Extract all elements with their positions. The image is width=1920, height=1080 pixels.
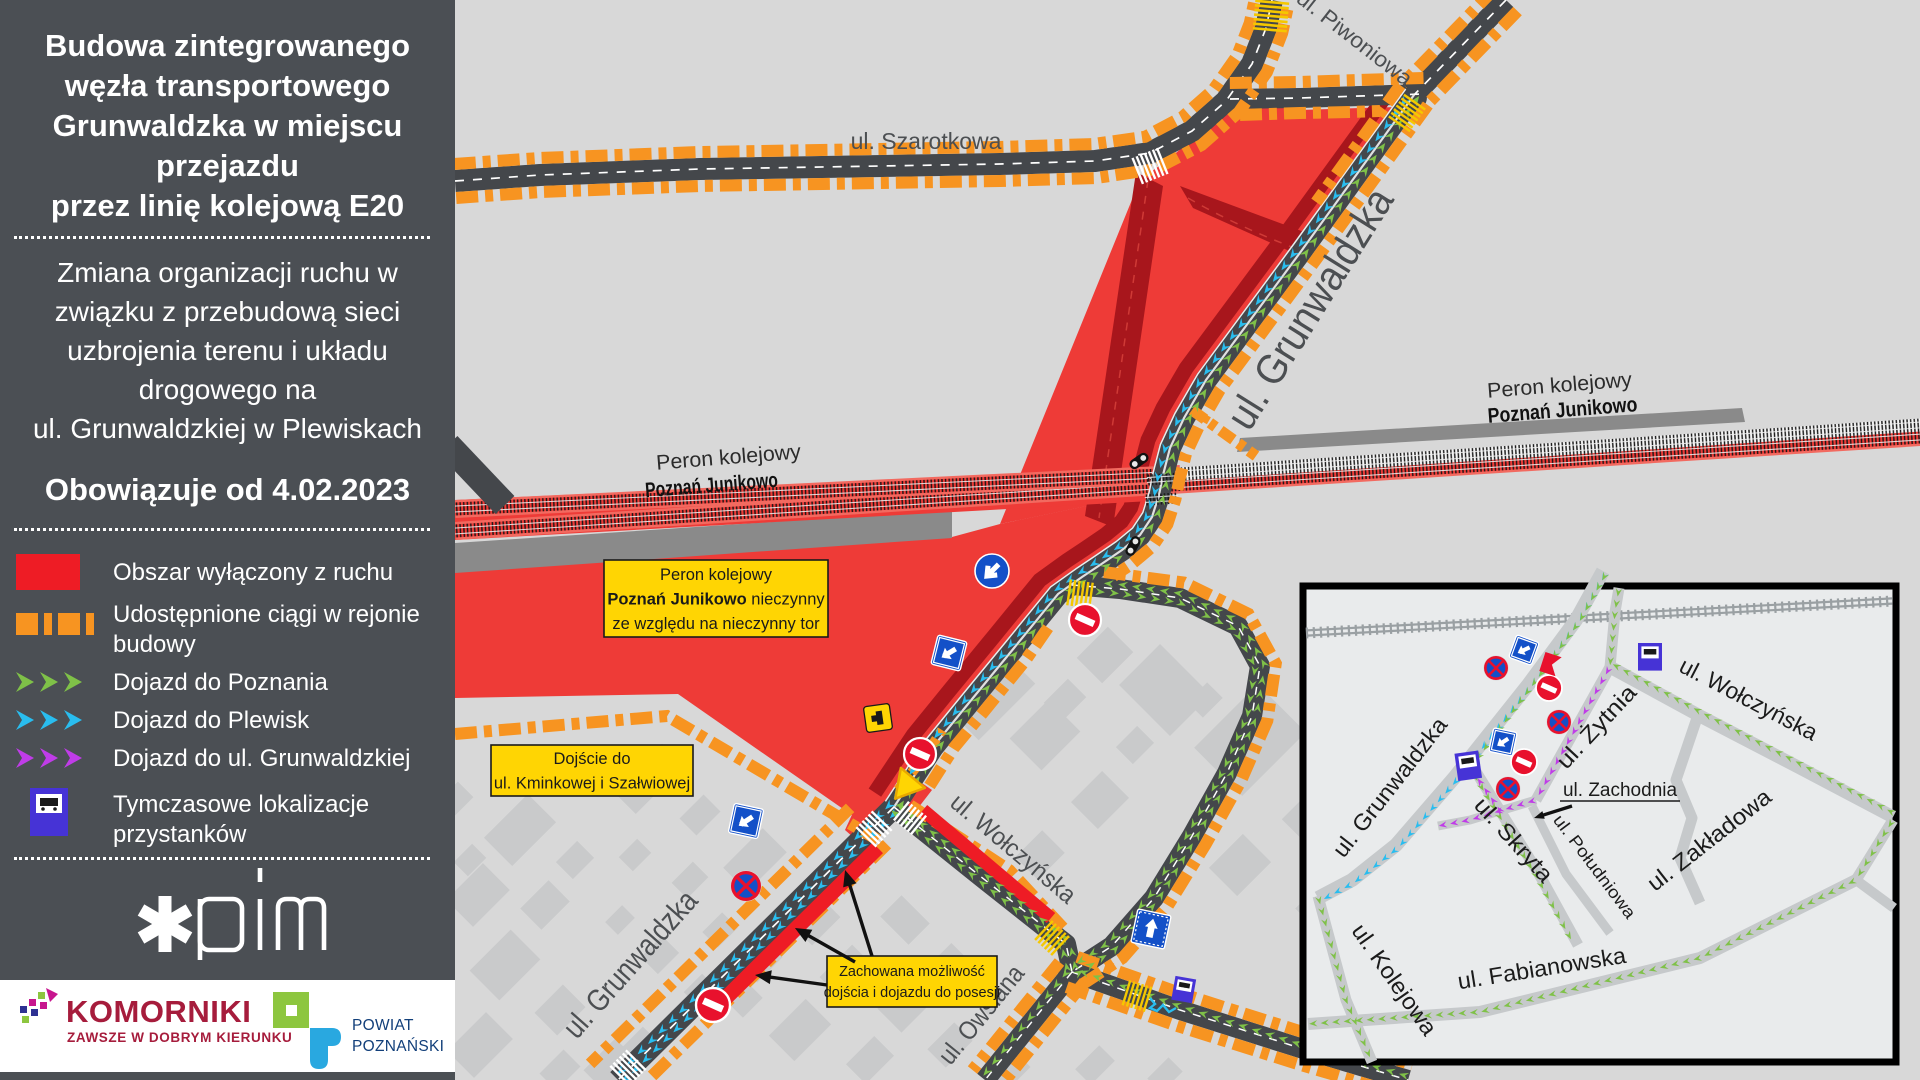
svg-text:Dojazd do Poznania: Dojazd do Poznania [113,669,328,696]
svg-text:Poznań Junikowo nieczynny: Poznań Junikowo nieczynny [607,590,825,608]
svg-text:ul. Zachodnia: ul. Zachodnia [1563,780,1678,801]
svg-text:przystanków: przystanków [113,821,247,848]
svg-text:Tymczasowe lokalizacje: Tymczasowe lokalizacje [113,791,369,818]
svg-text:ze względu na nieczynny tor: ze względu na nieczynny tor [612,615,820,633]
svg-text:ZAWSZE W DOBRYM KIERUNKU: ZAWSZE W DOBRYM KIERUNKU [67,1030,292,1045]
svg-text:ul. Szarotkowa: ul. Szarotkowa [851,128,1002,154]
svg-text:Dojazd do ul. Grunwaldzkiej: Dojazd do ul. Grunwaldzkiej [113,745,410,772]
svg-text:POWIAT: POWIAT [352,1017,414,1034]
svg-text:dojścia i dojazdu do posesji: dojścia i dojazdu do posesji [824,985,1001,1001]
svg-text:POZNAŃSKI: POZNAŃSKI [352,1038,444,1055]
svg-text:Dojazd do Plewisk: Dojazd do Plewisk [113,707,310,734]
svg-text:Zachowana możliwość: Zachowana możliwość [839,964,985,980]
svg-text:Udostępnione ciągi w rejonie: Udostępnione ciągi w rejonie [113,601,420,628]
svg-text:budowy: budowy [113,631,196,658]
svg-text:Obszar wyłączony z ruchu: Obszar wyłączony z ruchu [113,559,393,586]
svg-text:Dojście do: Dojście do [553,750,630,768]
svg-text:KOMORNIKI: KOMORNIKI [66,994,251,1029]
svg-text:ul. Kminkowej i Szałwiowej: ul. Kminkowej i Szałwiowej [494,775,690,793]
svg-text:Peron kolejowy: Peron kolejowy [660,566,773,584]
